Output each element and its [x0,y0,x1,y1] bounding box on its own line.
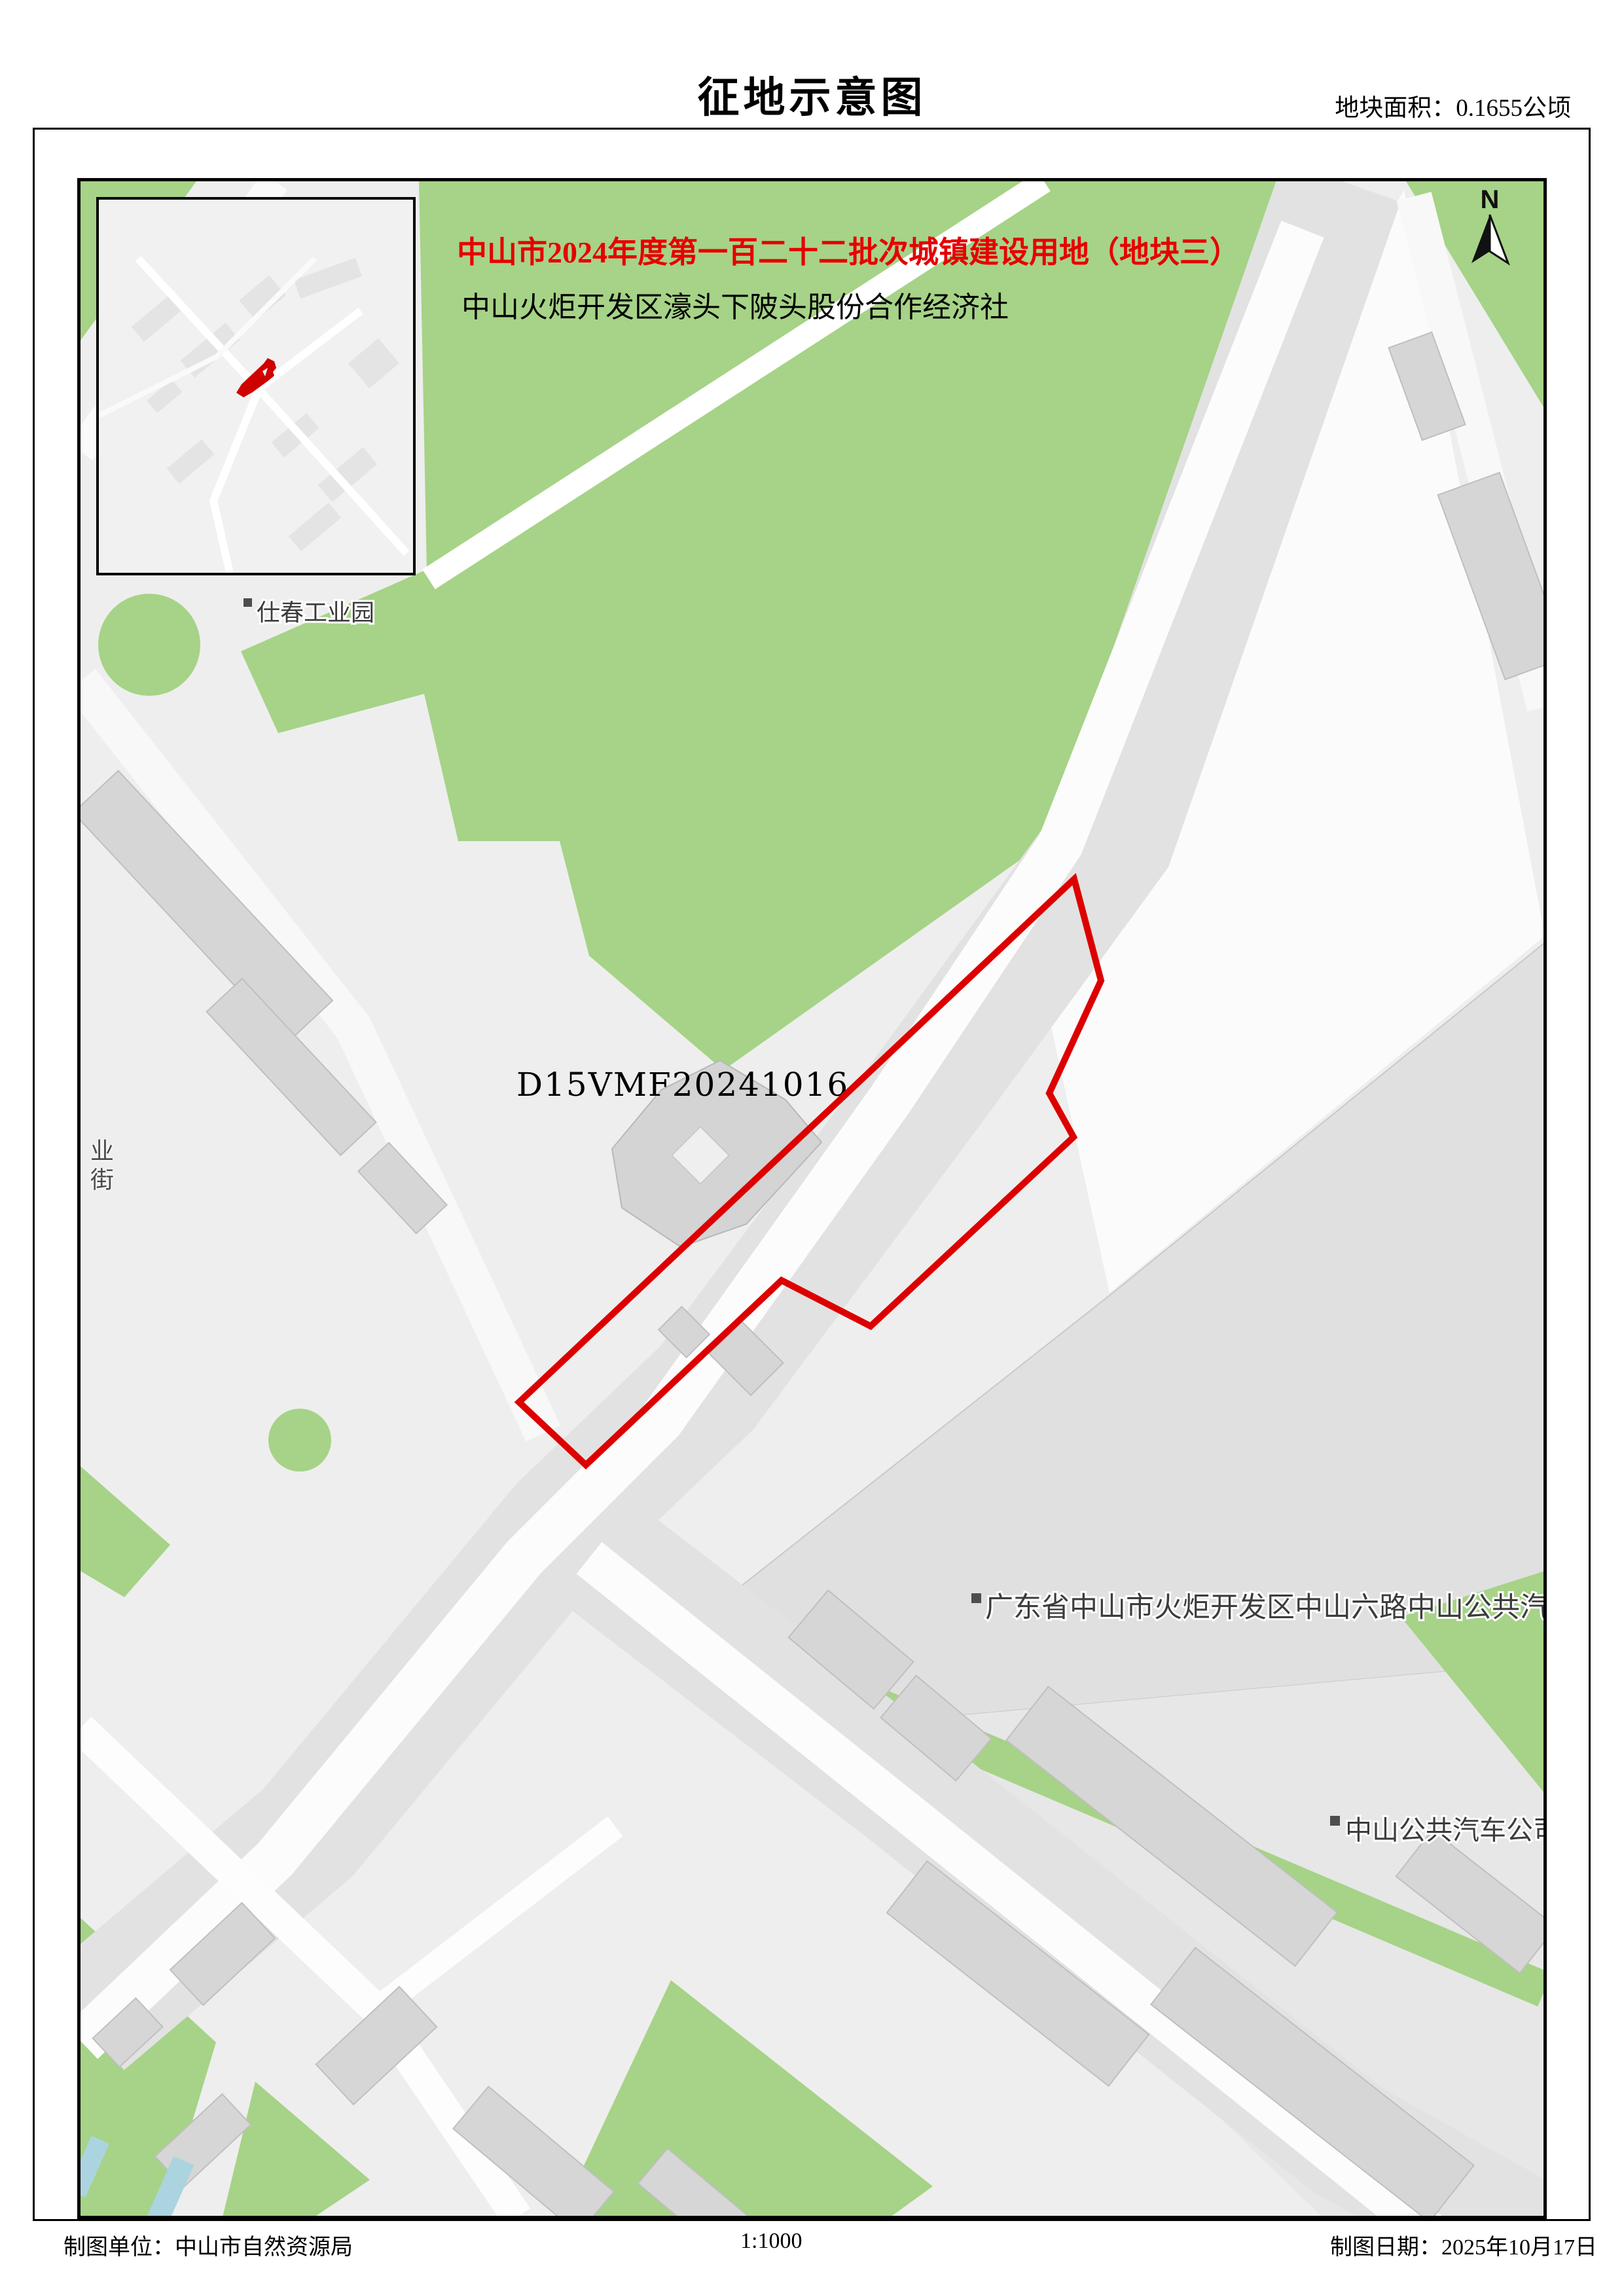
cooperative-annotation: 中山火炬开发区濠头下陂头股份合作经济社 [461,283,1009,325]
document-page: 征地示意图 地块面积：0.1655公顷 [0,0,1624,2295]
inset-locator-map [96,197,416,575]
poi-marker-icon [244,598,252,607]
main-map: 仕春工业园 广东省中山市火炬开发区中山六路中山公共汽 中山公共汽车公司 D15V… [77,178,1547,2219]
label-street-vertical: 业街 [83,1138,117,1196]
footer-scale: 1:1000 [740,2229,802,2254]
inset-canvas [99,200,413,573]
label-industrial-park: 仕春工业园 [257,599,374,626]
label-bus-company: 中山公共汽车公司 [1345,1815,1543,1845]
poi-marker-icon [971,1593,981,1603]
poi-marker-icon [1330,1816,1340,1826]
label-road-long: 广东省中山市火炬开发区中山六路中山公共汽 [985,1592,1543,1623]
footer-agency: 制图单位：中山市自然资源局 [63,2229,353,2261]
north-label: N [1481,185,1500,214]
parcel-area-note: 地块面积：0.1655公顷 [1335,88,1571,123]
batch-annotation: 中山市2024年度第一百二十二批次城镇建设用地（地块三） [457,228,1240,272]
footer-date: 制图日期：2025年10月17日 [1330,2229,1597,2261]
parcel-code-label: D15VMF20241016 [516,1066,849,1104]
